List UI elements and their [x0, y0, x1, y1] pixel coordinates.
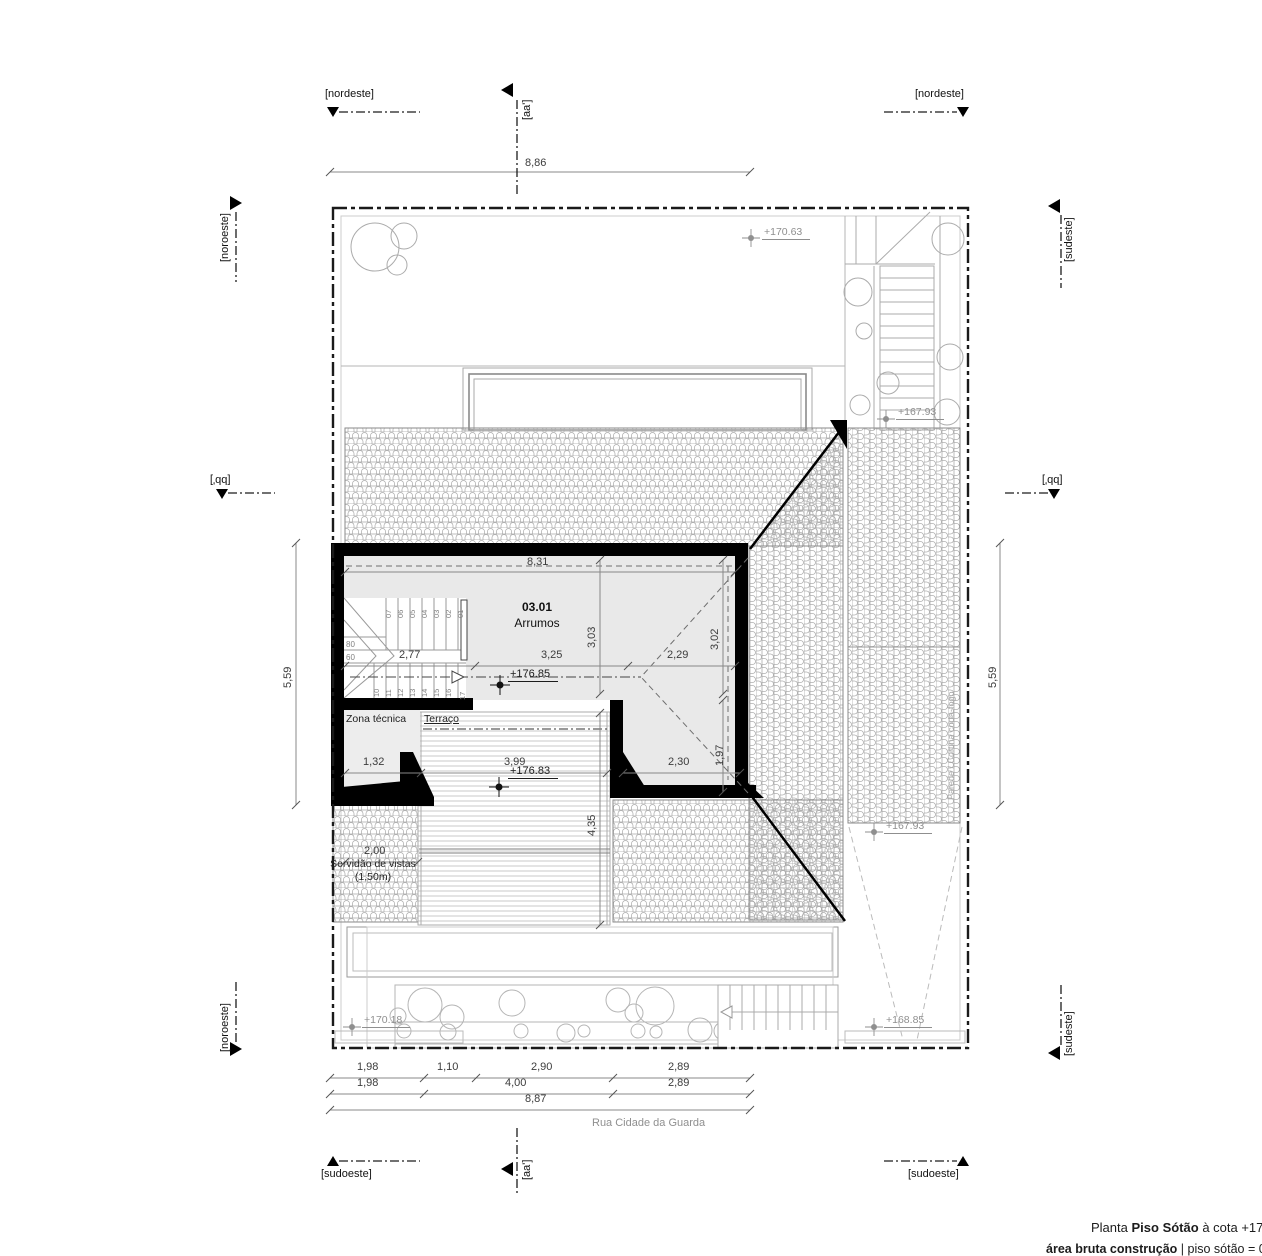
- room-number: 03.01: [500, 600, 574, 614]
- ramp-lines: [849, 827, 962, 1040]
- terrace-deck: [418, 712, 610, 925]
- level-ramp: +168.85: [884, 1014, 932, 1028]
- firewall-label: Parede / Cortina corta-fogo: [946, 691, 956, 800]
- stair-step-04: 04: [420, 610, 429, 618]
- marker-sudoeste-right: [sudoeste]: [908, 1168, 959, 1180]
- stair-step-13: 13: [408, 689, 417, 697]
- exterior-stair-lower: [718, 985, 838, 1048]
- marker-sudeste-bottom: [sudeste]: [1063, 1011, 1075, 1056]
- dim-559-right: 5,59: [987, 667, 999, 688]
- drawing-subtitle: área bruta construção | piso sótão = 031: [1046, 1242, 1262, 1256]
- section-label-aa-bottom: [aa']: [521, 1160, 533, 1180]
- dim-559-left: 5,59: [282, 667, 294, 688]
- servidao-label-2: (1,50m): [328, 871, 418, 883]
- subtitle-bold: área bruta construção: [1046, 1242, 1177, 1256]
- stair-step-12: 12: [396, 689, 405, 697]
- title-cota: à cota +178: [1202, 1220, 1262, 1235]
- dim-b2-289: 2,89: [668, 1077, 689, 1089]
- level-roof-side: +167.93: [884, 820, 932, 834]
- subtitle-rest: | piso sótão = 031: [1181, 1242, 1262, 1256]
- zona-tecnica-label: Zona técnica: [346, 713, 406, 725]
- section-label-bb-right: [bb']: [1042, 474, 1062, 486]
- stair-step-03: 03: [432, 610, 441, 618]
- stair-step-07: 07: [384, 610, 393, 618]
- dim-b1-198: 1,98: [357, 1061, 378, 1073]
- terraco-label: Terraço: [424, 713, 459, 725]
- marker-sudeste-top: [sudeste]: [1063, 217, 1075, 262]
- dim-b1-110: 1,10: [437, 1061, 458, 1073]
- stair-step-11: 11: [384, 689, 393, 697]
- dim-325: 3,25: [541, 649, 562, 661]
- stair-step-14: 14: [420, 689, 429, 697]
- stair-step-02: 02: [444, 610, 453, 618]
- section-label-aa-top: [aa']: [521, 100, 533, 120]
- dim-b1-290: 2,90: [531, 1061, 552, 1073]
- floor-plan-canvas: [nordeste] [nordeste] [sudoeste] [sudoes…: [0, 0, 1262, 1256]
- stair-step-10: 10: [372, 689, 381, 697]
- marker-noroeste-top: [noroeste]: [219, 213, 231, 262]
- drawing-title: Planta Piso Sótão à cota +178: [1091, 1220, 1262, 1235]
- dim-b2-198: 1,98: [357, 1077, 378, 1089]
- plan-line-work: [0, 0, 1262, 1256]
- stair-step-15: 15: [432, 689, 441, 697]
- dim-435: 4,35: [586, 815, 598, 836]
- stair-step-01: 01: [456, 610, 465, 618]
- marker-noroeste-bottom: [noroeste]: [219, 1003, 231, 1052]
- dim-top: 8,86: [525, 157, 546, 169]
- stair-step-06: 06: [396, 610, 405, 618]
- dim-303: 3,03: [586, 627, 598, 648]
- dim-total: 8,87: [525, 1093, 546, 1105]
- marker-nordeste-right: [nordeste]: [915, 88, 964, 100]
- servidao-label-1: Servidão de vistas: [328, 858, 418, 870]
- title-name: Piso Sótão: [1132, 1220, 1199, 1235]
- dim-302: 3,02: [709, 629, 721, 650]
- skylight-frame: [463, 368, 812, 430]
- dim-229: 2,29: [667, 649, 688, 661]
- dim-132: 1,32: [363, 756, 384, 768]
- level-street: +170.18: [362, 1014, 410, 1028]
- dim-197: 1,97: [714, 745, 726, 766]
- level-upper-stairs: +167.93: [896, 406, 944, 420]
- stair-step-17: 17: [458, 692, 467, 700]
- dim-b2-400: 4,00: [505, 1077, 526, 1089]
- stair-step-05: 05: [408, 610, 417, 618]
- stair-width-80: 80: [346, 640, 355, 649]
- level-garden: +170.63: [762, 226, 810, 240]
- level-terrace: +176.83: [508, 765, 558, 779]
- marker-nordeste-left: [nordeste]: [325, 88, 374, 100]
- section-label-bb-left: [bb']: [210, 474, 230, 486]
- room-name: Arrumos: [500, 616, 574, 630]
- dim-200: 2,00: [364, 845, 385, 857]
- dim-b1-289: 2,89: [668, 1061, 689, 1073]
- tree-symbols: [351, 223, 417, 275]
- marker-sudoeste-left: [sudoeste]: [321, 1168, 372, 1180]
- exterior-stair-upper: [844, 212, 964, 430]
- dim-230: 2,30: [668, 756, 689, 768]
- title-prefix: Planta: [1091, 1220, 1128, 1235]
- level-attic: +176.85: [508, 668, 558, 682]
- dim-room-width: 8,31: [527, 556, 548, 568]
- stair-width-60: 60: [346, 653, 355, 662]
- street-name: Rua Cidade da Guarda: [592, 1117, 705, 1129]
- dim-277: 2,77: [399, 649, 420, 661]
- stair-step-16: 16: [444, 689, 453, 697]
